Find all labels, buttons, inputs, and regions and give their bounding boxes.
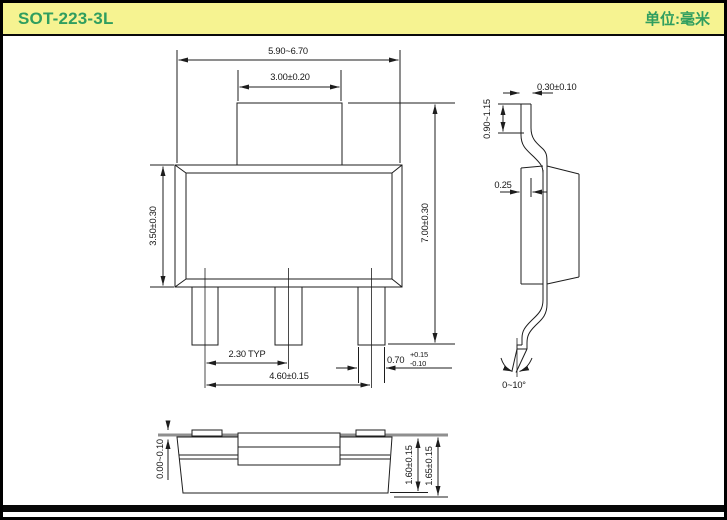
dim-lead-angle: 0~10° — [502, 380, 526, 390]
dim-overall-height: 7.00±0.30 — [420, 203, 430, 243]
title-bar: SOT-223-3L 单位:毫米 — [3, 3, 724, 36]
dim-lead-span: 4.60±0.15 — [269, 371, 309, 381]
drawing-page: 5.90~6.70 3.00±0.20 3.50±0.30 7.00±0.30 … — [0, 0, 727, 520]
dim-tab-thickness: 0.30±0.10 — [537, 82, 577, 92]
dim-tab-length: 0.90~1.15 — [482, 99, 492, 139]
front-view-labels: 5.90~6.70 3.00±0.20 3.50±0.30 7.00±0.30 … — [148, 46, 430, 381]
side-view-labels: 0.30±0.10 0.90~1.15 0.25 0~10° — [482, 82, 577, 390]
dim-lead-width-tol-plus: +0.15 — [410, 350, 428, 359]
package-title: SOT-223-3L — [18, 9, 114, 29]
dim-lead-width: 0.70 — [387, 355, 404, 365]
dim-body-thickness: 1.60±0.15 — [404, 445, 414, 485]
side-view-dimension-lines — [498, 93, 553, 372]
technical-drawing: 5.90~6.70 3.00±0.20 3.50±0.30 7.00±0.30 … — [0, 0, 727, 520]
dim-standoff: 0.00~0.10 — [155, 439, 165, 479]
dim-body-height: 3.50±0.30 — [148, 206, 158, 246]
dim-lead-width-tol-minus: -0.10 — [410, 359, 426, 368]
dim-overall-width: 5.90~6.70 — [268, 46, 308, 56]
front-view-outline — [175, 103, 402, 388]
side-view-outline — [512, 104, 579, 377]
dim-tab-width: 3.00±0.20 — [270, 72, 310, 82]
unit-label: 单位:毫米 — [645, 8, 710, 29]
dim-lead-offset: 0.25 — [494, 180, 511, 190]
bottom-rule — [3, 505, 724, 512]
dim-lead-pitch: 2.30 TYP — [229, 349, 266, 359]
dim-overall-thickness: 1.65±0.15 — [424, 446, 434, 486]
page-border — [2, 2, 726, 519]
